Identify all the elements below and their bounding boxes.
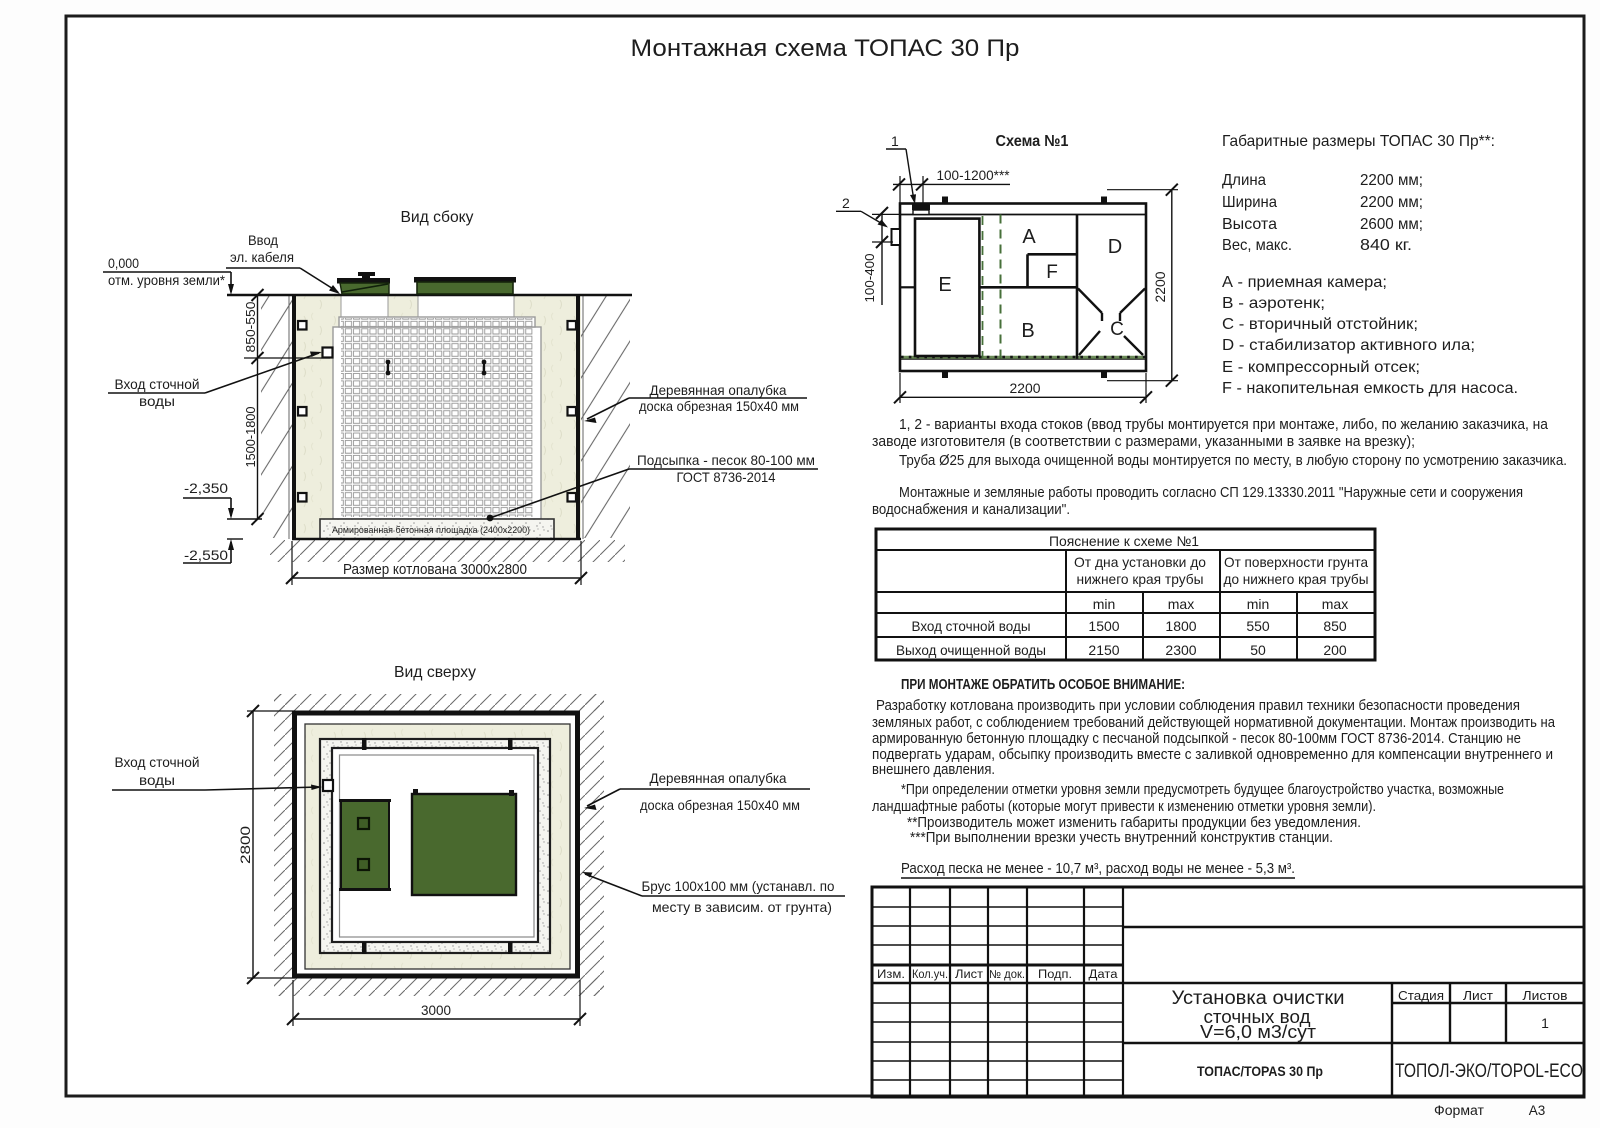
svg-text:Расход песка не менее - 10,7 м: Расход песка не менее - 10,7 м³, расход …: [901, 861, 1295, 877]
svg-text:840 кг.: 840 кг.: [1360, 237, 1412, 254]
svg-text:V=6,0 м3/сут: V=6,0 м3/сут: [1200, 1022, 1316, 1042]
svg-text:Вес, макс.: Вес, макс.: [1222, 237, 1292, 254]
svg-text:Схема №1: Схема №1: [996, 133, 1069, 150]
svg-text:850-550: 850-550: [243, 302, 258, 353]
svg-text:Армированная бетонная площадка: Армированная бетонная площадка (2400х220…: [332, 525, 530, 536]
svg-text:3000: 3000: [421, 1002, 451, 1018]
svg-text:Вид сбоку: Вид сбоку: [401, 209, 474, 226]
svg-text:От поверхности грунта: От поверхности грунта: [1224, 554, 1368, 570]
svg-text:ТОПОЛ-ЭКО/TOPOL-ECO: ТОПОЛ-ЭКО/TOPOL-ECO: [1395, 1061, 1583, 1082]
svg-text:Вид сверху: Вид сверху: [394, 664, 476, 681]
svg-text:подвергать ударам, обсыпку про: подвергать ударам, обсыпку производить в…: [872, 747, 1553, 763]
svg-text:2300: 2300: [1165, 642, 1196, 658]
svg-text:От дна установки до: От дна установки до: [1074, 554, 1206, 570]
svg-text:min: min: [1247, 596, 1270, 612]
svg-text:Подп.: Подп.: [1038, 969, 1072, 981]
svg-text:ГОСТ 8736-2014: ГОСТ 8736-2014: [677, 469, 776, 485]
svg-text:850: 850: [1323, 618, 1347, 634]
svg-text:Ввод: Ввод: [248, 233, 278, 248]
svg-text:С - вторичный отстойник;: С - вторичный отстойник;: [1222, 316, 1418, 333]
svg-text:1: 1: [891, 133, 899, 149]
svg-text:Вход сточной: Вход сточной: [115, 755, 200, 770]
svg-text:min: min: [1093, 596, 1116, 612]
svg-text:1800: 1800: [1165, 618, 1196, 634]
svg-text:Размер котлована 3000х2800: Размер котлована 3000х2800: [343, 561, 527, 578]
svg-text:до нижнего края трубы: до нижнего края трубы: [1224, 571, 1369, 587]
svg-text:100-1200***: 100-1200***: [937, 168, 1011, 183]
svg-text:№ док.: № док.: [989, 969, 1025, 981]
svg-text:Длина: Длина: [1222, 172, 1266, 189]
svg-text:Разработку котлована производи: Разработку котлована производить при усл…: [876, 698, 1520, 714]
svg-text:F: F: [1046, 262, 1058, 283]
svg-text:200: 200: [1323, 642, 1347, 658]
svg-text:max: max: [1168, 596, 1194, 612]
svg-text:заводе изготовителя (в соответ: заводе изготовителя (в соответствии с ра…: [872, 434, 1415, 450]
svg-text:Выход очищенной воды: Выход очищенной воды: [896, 642, 1046, 658]
svg-text:Деревянная опалубка: Деревянная опалубка: [650, 770, 787, 786]
svg-text:нижнего края трубы: нижнего края трубы: [1077, 571, 1204, 587]
svg-text:100-400: 100-400: [862, 254, 877, 303]
svg-text:50: 50: [1250, 642, 1266, 658]
svg-text:-2,350: -2,350: [184, 481, 228, 496]
svg-text:2600 мм;: 2600 мм;: [1360, 216, 1423, 233]
svg-text:-2,550: -2,550: [184, 548, 228, 563]
svg-text:max: max: [1322, 596, 1348, 612]
svg-text:A: A: [1022, 226, 1036, 248]
svg-text:1: 1: [1541, 1015, 1549, 1031]
svg-text:Изм.: Изм.: [877, 969, 905, 981]
svg-text:Стадия: Стадия: [1398, 989, 1444, 1003]
svg-text:0,000: 0,000: [108, 256, 139, 271]
svg-text:**Производитель может изменить: **Производитель может изменить габариты …: [907, 815, 1361, 831]
svg-text:ТОПАС/TOPAS 30 Пр: ТОПАС/TOPAS 30 Пр: [1197, 1063, 1323, 1079]
svg-text:месту в зависим. от грунта): месту в зависим. от грунта): [652, 899, 832, 915]
svg-text:1500: 1500: [1088, 618, 1119, 634]
svg-text:2200: 2200: [1152, 271, 1168, 302]
svg-text:2200 мм;: 2200 мм;: [1360, 172, 1423, 189]
svg-text:2200: 2200: [1010, 380, 1041, 396]
svg-text:C: C: [1110, 319, 1124, 340]
svg-text:ПРИ МОНТАЖЕ ОБРАТИТЬ ОСОБОЕ ВН: ПРИ МОНТАЖЕ ОБРАТИТЬ ОСОБОЕ ВНИМАНИЕ:: [901, 677, 1185, 693]
svg-text:земляных работ, с соблюдением: земляных работ, с соблюдением требований…: [872, 715, 1556, 731]
svg-text:Установка очистки: Установка очистки: [1172, 988, 1345, 1009]
svg-text:D - стабилизатор активного ила: D - стабилизатор активного ила;: [1222, 337, 1475, 354]
svg-text:2150: 2150: [1088, 642, 1119, 658]
svg-text:ландшафтные работы (которые мо: ландшафтные работы (которые могут привес…: [872, 799, 1376, 815]
svg-text:Монтажные и земляные работы пр: Монтажные и земляные работы проводить со…: [899, 485, 1523, 501]
svg-text:Монтажная схема ТОПАС 30 Пр: Монтажная схема ТОПАС 30 Пр: [631, 35, 1020, 62]
svg-text:*При определении отметки уровн: *При определении отметки уровня земли пр…: [901, 782, 1504, 798]
svg-text:1500-1800: 1500-1800: [243, 407, 258, 468]
svg-text:Деревянная опалубка: Деревянная опалубка: [650, 382, 787, 398]
svg-text:водоснабжения и канализации".: водоснабжения и канализации".: [872, 502, 1070, 518]
svg-text:Брус 100х100 мм (устанавл. по: Брус 100х100 мм (устанавл. по: [642, 878, 835, 894]
svg-text:доска обрезная 150х40 мм: доска обрезная 150х40 мм: [640, 797, 800, 813]
svg-text:B: B: [1021, 320, 1034, 342]
svg-text:А3: А3: [1529, 1103, 1546, 1118]
svg-text:Лист: Лист: [1463, 989, 1493, 1003]
svg-text:D: D: [1108, 236, 1122, 258]
svg-text:E: E: [938, 274, 951, 296]
svg-text:Пояснение к схеме №1: Пояснение к схеме №1: [1049, 533, 1199, 549]
svg-text:Е - компрессорный отсек;: Е - компрессорный отсек;: [1222, 359, 1420, 376]
svg-text:эл. кабеля: эл. кабеля: [230, 250, 294, 265]
svg-text:Ширина: Ширина: [1222, 194, 1277, 211]
svg-text:***При выполнении врезки учест: ***При выполнении врезки учесть внутренн…: [910, 830, 1333, 846]
svg-text:2800: 2800: [237, 826, 253, 864]
svg-text:550: 550: [1246, 618, 1270, 634]
svg-text:отм. уровня земли*: отм. уровня земли*: [108, 273, 226, 288]
svg-text:Труба Ø25 для выхода очищенной: Труба Ø25 для выхода очищенной воды монт…: [899, 453, 1567, 469]
svg-text:А - приемная камера;: А - приемная камера;: [1222, 274, 1387, 291]
svg-text:Вход сточной: Вход сточной: [115, 377, 200, 392]
svg-text:внешнего давления.: внешнего давления.: [872, 762, 995, 778]
svg-text:Высота: Высота: [1222, 216, 1277, 233]
svg-text:Вход сточной воды: Вход сточной воды: [912, 618, 1031, 634]
svg-text:Подсыпка - песок 80-100 мм: Подсыпка - песок 80-100 мм: [637, 452, 815, 468]
svg-text:Лист: Лист: [955, 969, 984, 981]
svg-text:F - накопительная емкость для: F - накопительная емкость для насоса.: [1222, 380, 1518, 397]
svg-text:воды: воды: [139, 394, 175, 409]
svg-text:Дата: Дата: [1089, 969, 1119, 981]
svg-text:армированную бетонную площадку: армированную бетонную площадку с песчано…: [872, 731, 1521, 747]
svg-text:Кол.уч.: Кол.уч.: [912, 969, 948, 981]
svg-text:Габаритные размеры ТОПАС 30 Пр: Габаритные размеры ТОПАС 30 Пр**:: [1222, 133, 1495, 150]
svg-text:воды: воды: [139, 773, 175, 788]
svg-text:2200 мм;: 2200 мм;: [1360, 194, 1423, 211]
svg-text:2: 2: [842, 195, 850, 211]
svg-text:1, 2 - варианты входа стоков: 1, 2 - варианты входа стоков (ввод трубы…: [899, 417, 1549, 433]
svg-text:Листов: Листов: [1523, 989, 1568, 1003]
svg-text:Формат: Формат: [1434, 1103, 1484, 1118]
svg-text:В - аэротенк;: В - аэротенк;: [1222, 295, 1325, 312]
svg-text:доска обрезная 150х40 мм: доска обрезная 150х40 мм: [639, 398, 799, 414]
